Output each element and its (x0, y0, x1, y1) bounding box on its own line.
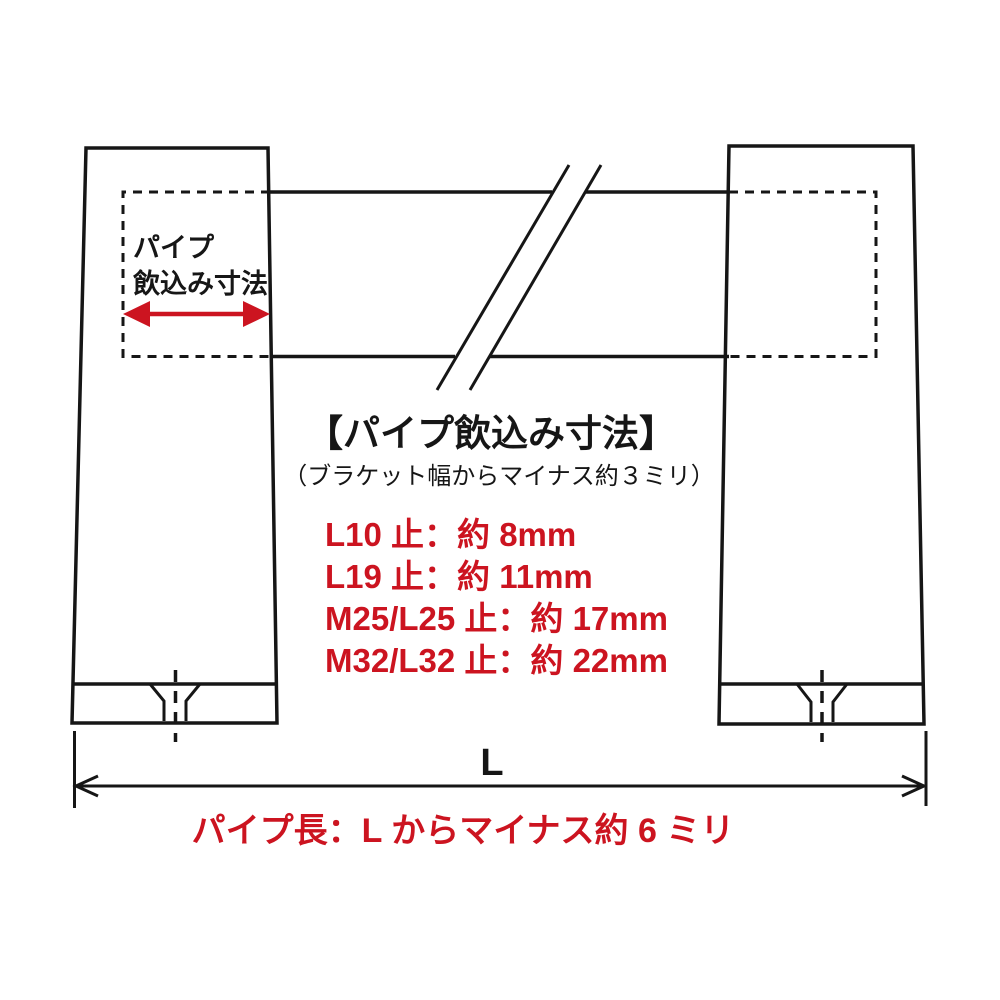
spec-line-m25-l25: M25/L25 止：約 17mm (325, 600, 668, 637)
section-subtitle: （ブラケット幅からマイナス約３ミリ） (283, 463, 715, 490)
section-title: 【パイプ飲込み寸法】 (306, 413, 676, 454)
right-bracket-outline (719, 146, 924, 724)
diagram-svg: パイプ 飲込み寸法 【パイプ飲込み寸法】 （ブラケット幅からマイナス約３ミリ） … (0, 0, 1000, 1000)
dimension-label: L (480, 742, 503, 784)
spec-line-m32-l32: M32/L32 止：約 22mm (325, 642, 668, 679)
spec-line-l10: L10 止：約 8mm (325, 516, 576, 553)
insertion-depth-arrow (123, 301, 270, 327)
bracket-label-line2: 飲込み寸法 (132, 268, 268, 299)
insertion-depth-arrowhead-left (123, 301, 150, 327)
right-hidden-pipe-outline (729, 192, 876, 357)
pipe-length-note: パイプ長：L からマイナス約 6 ミリ (192, 812, 735, 850)
insertion-depth-arrowhead-right (243, 301, 270, 327)
spec-line-l19: L19 止：約 11mm (325, 558, 593, 595)
pipe-insertion-diagram: パイプ 飲込み寸法 【パイプ飲込み寸法】 （ブラケット幅からマイナス約３ミリ） … (0, 0, 1000, 1000)
bracket-label-line1: パイプ (133, 233, 215, 263)
